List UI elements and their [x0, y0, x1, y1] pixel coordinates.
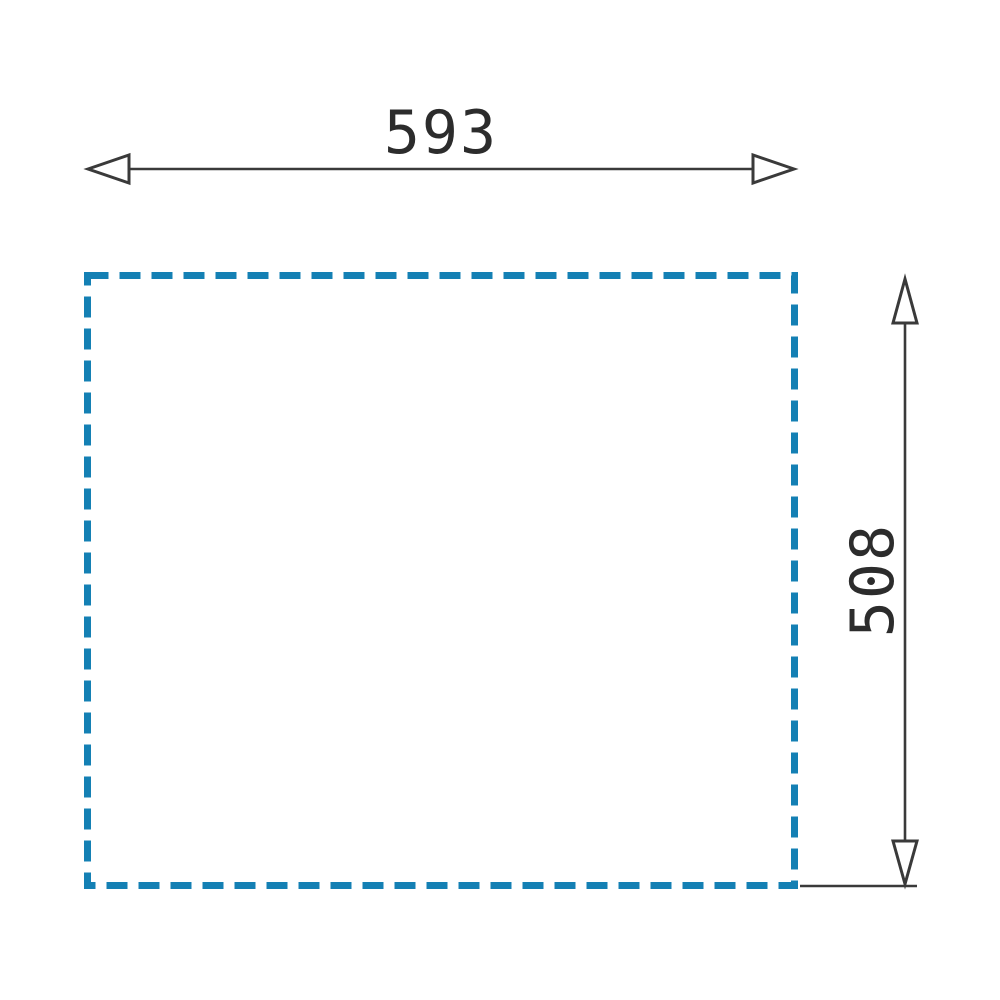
- height-dimension-label: 508: [843, 500, 903, 660]
- width-dimension-label: 593: [87, 103, 795, 163]
- arrowhead-down-icon: [893, 841, 917, 884]
- arrowhead-up-icon: [893, 279, 917, 323]
- cutout-outline-rect: [88, 276, 795, 886]
- dimension-diagram: 593 508: [0, 0, 1000, 1000]
